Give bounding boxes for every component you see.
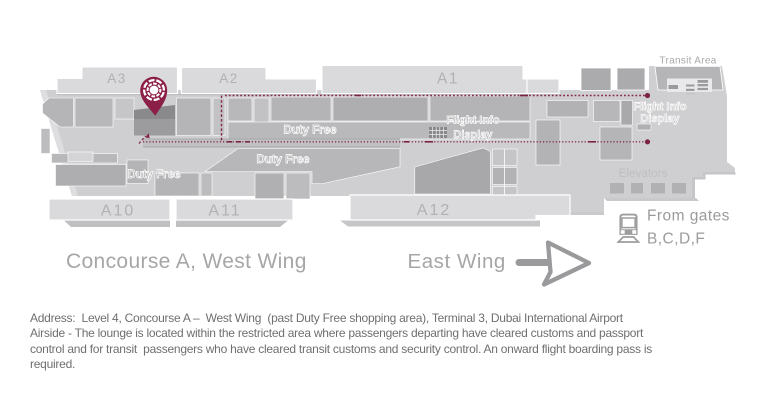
svg-text:Elevators: Elevators <box>619 168 668 180</box>
svg-text:Concourse A, West Wing: Concourse A, West Wing <box>66 250 307 273</box>
svg-text:Flight Info: Flight Info <box>446 115 499 127</box>
svg-text:A2: A2 <box>219 71 239 86</box>
svg-text:A12: A12 <box>417 202 451 219</box>
svg-text:East Wing: East Wing <box>408 250 506 273</box>
svg-text:Duty Free: Duty Free <box>283 125 336 137</box>
svg-text:Duty Free: Duty Free <box>127 169 180 181</box>
svg-text:A10: A10 <box>101 203 135 220</box>
svg-text:From gates: From gates <box>647 208 730 225</box>
svg-text:B,C,D,F: B,C,D,F <box>647 231 705 248</box>
svg-text:Duty Free: Duty Free <box>256 154 309 166</box>
svg-text:Transit Area: Transit Area <box>659 56 716 67</box>
svg-text:Display: Display <box>453 129 493 141</box>
svg-text:Display: Display <box>640 113 680 125</box>
svg-text:A3: A3 <box>107 71 127 86</box>
svg-text:Flight Info: Flight Info <box>633 101 686 113</box>
svg-text:A11: A11 <box>208 203 241 220</box>
svg-text:A1: A1 <box>437 71 459 88</box>
